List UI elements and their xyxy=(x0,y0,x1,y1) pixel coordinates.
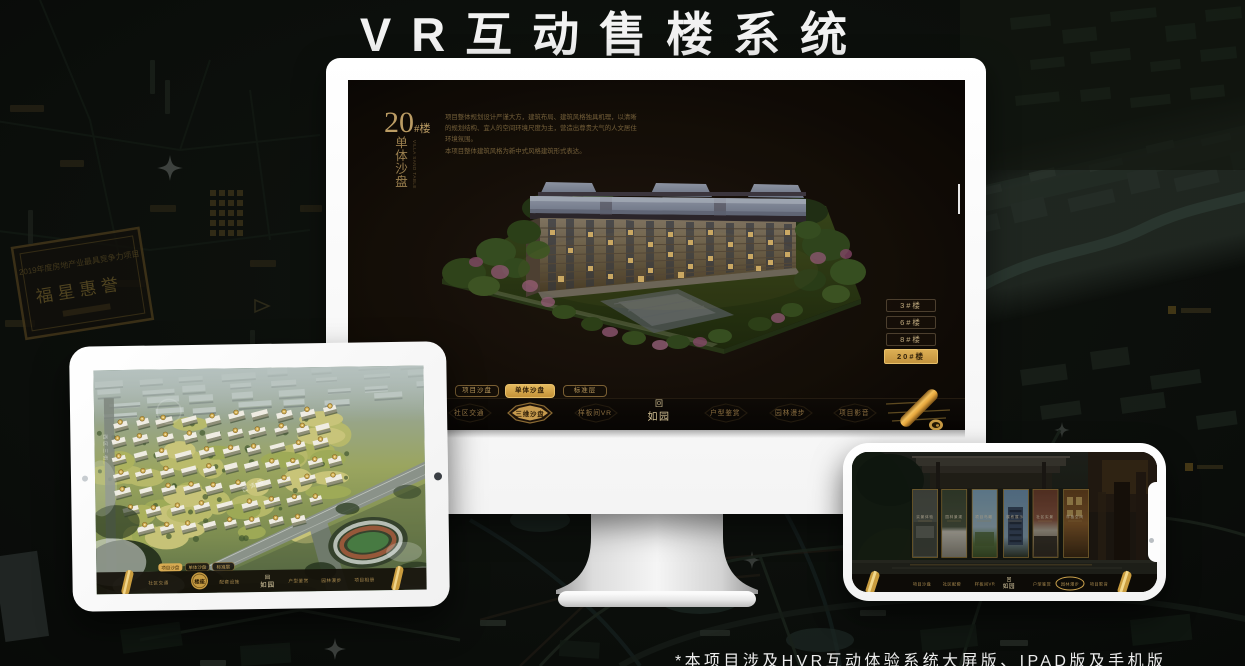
svg-text:户型鉴赏: 户型鉴赏 xyxy=(1033,581,1051,588)
svg-text:项目沙盘: 项目沙盘 xyxy=(913,581,931,588)
svg-text:西区三街: 西区三街 xyxy=(101,434,108,462)
svg-text:样板间VR: 样板间VR xyxy=(975,581,995,588)
svg-text:回: 回 xyxy=(265,575,270,581)
svg-text:如园: 如园 xyxy=(260,580,275,589)
svg-text:如园: 如园 xyxy=(1003,582,1016,590)
svg-text:园林漫步: 园林漫步 xyxy=(1061,581,1079,588)
svg-text:楼座: 楼座 xyxy=(194,577,205,585)
svg-text:社区配套: 社区配套 xyxy=(943,581,962,588)
svg-text:项目影音: 项目影音 xyxy=(1090,581,1108,588)
